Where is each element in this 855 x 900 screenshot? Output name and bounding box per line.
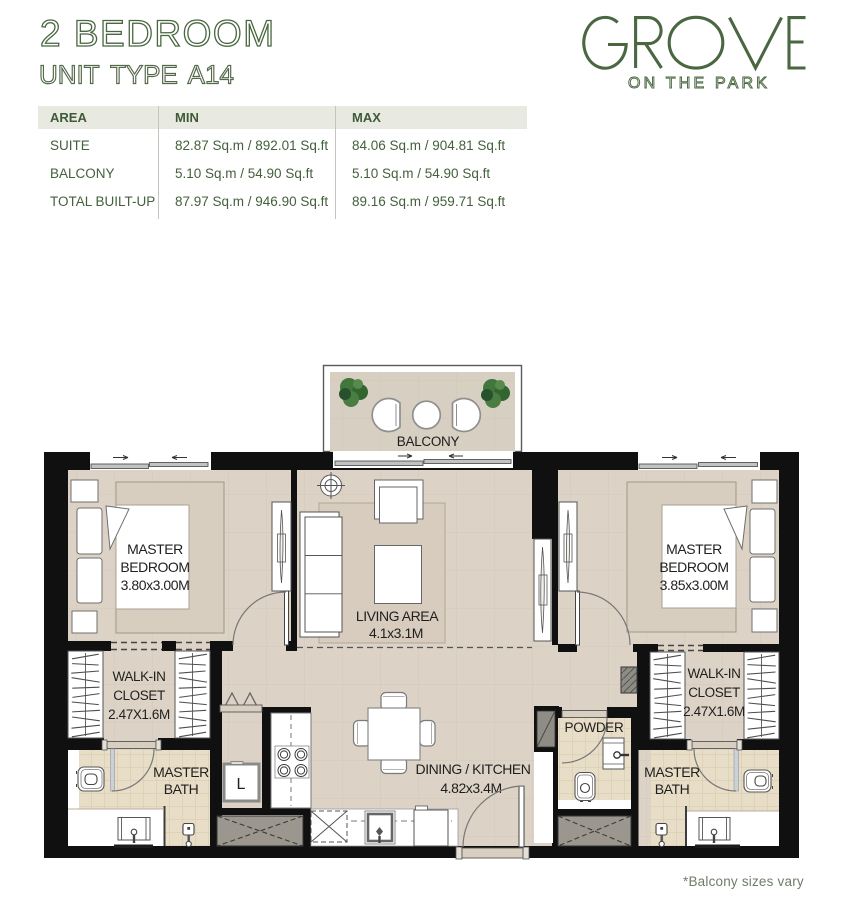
svg-text:DINING / KITCHEN: DINING / KITCHEN <box>416 761 531 777</box>
svg-text:WALK-IN: WALK-IN <box>113 669 166 684</box>
svg-text:BALCONY: BALCONY <box>397 434 460 449</box>
svg-text:WALK-IN: WALK-IN <box>688 666 741 681</box>
svg-text:POWDER: POWDER <box>565 720 625 735</box>
svg-text:CLOSET: CLOSET <box>113 688 165 703</box>
svg-text:3.85x3.00M: 3.85x3.00M <box>660 577 729 593</box>
svg-text:2 BEDROOM: 2 BEDROOM <box>40 13 276 54</box>
svg-text:4.82x3.4M: 4.82x3.4M <box>440 780 501 796</box>
svg-text:MASTER: MASTER <box>644 764 700 780</box>
svg-text:L: L <box>237 776 246 793</box>
svg-text:2.47X1.6M: 2.47X1.6M <box>683 704 745 719</box>
svg-text:LIVING AREA: LIVING AREA <box>356 608 439 624</box>
svg-text:CLOSET: CLOSET <box>688 685 740 700</box>
svg-text:MASTER: MASTER <box>153 764 209 780</box>
svg-text:ON THE PARK: ON THE PARK <box>628 75 770 92</box>
svg-text:BEDROOM: BEDROOM <box>659 559 728 575</box>
svg-text:4.1x3.1M: 4.1x3.1M <box>369 625 423 641</box>
svg-text:BEDROOM: BEDROOM <box>120 559 189 575</box>
svg-text:UNIT TYPE A14: UNIT TYPE A14 <box>39 60 234 90</box>
svg-text:3.80x3.00M: 3.80x3.00M <box>121 577 190 593</box>
svg-text:2.47X1.6M: 2.47X1.6M <box>108 707 170 722</box>
svg-text:BATH: BATH <box>164 781 199 797</box>
svg-text:BATH: BATH <box>655 781 690 797</box>
svg-text:MASTER: MASTER <box>666 541 722 557</box>
svg-text:MASTER: MASTER <box>127 541 183 557</box>
